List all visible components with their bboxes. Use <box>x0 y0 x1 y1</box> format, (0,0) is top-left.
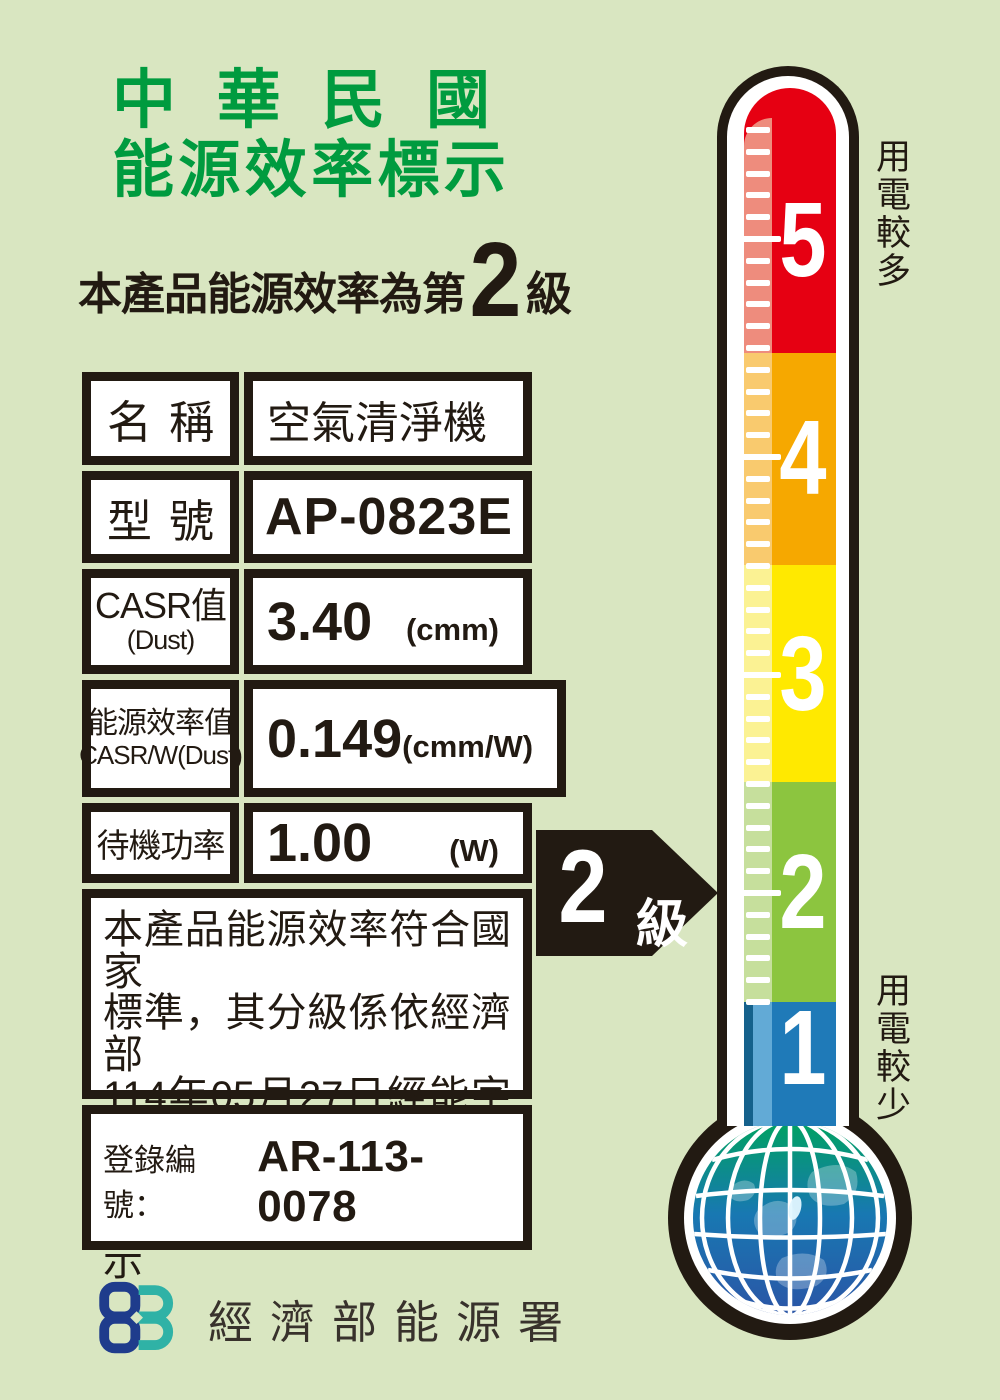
efficiency-label-cell: 能源效率值 CASR/W(Dust) <box>82 680 239 797</box>
scale-tick <box>746 781 770 787</box>
scale-tick <box>746 868 770 874</box>
arrow-grade-suffix: 級 <box>636 882 688 957</box>
scale-tick <box>746 737 770 743</box>
scale-tick <box>746 258 770 264</box>
standby-value-cell: 1.00 (W) <box>244 803 532 883</box>
standby-label-cell: 待機功率 <box>82 803 239 883</box>
scale-tick <box>736 236 781 242</box>
statement-cell: 本產品能源效率符合國家 標準，其分級係依經濟部 114年05月27日經能字第 1… <box>82 889 532 1099</box>
level-number-1: 1 <box>776 997 830 1099</box>
name-label-cell: 名稱 <box>82 372 239 465</box>
scale-tick <box>746 716 770 722</box>
scale-tick <box>746 694 770 700</box>
grade-statement-prefix: 本產品能源效率為第 <box>78 273 465 326</box>
scale-tick <box>746 563 770 569</box>
scale-tick <box>736 454 781 460</box>
model-value-cell: AP-0823E <box>244 471 532 563</box>
grade-statement-number: 2 <box>470 235 522 326</box>
table-row-efficiency: 能源效率值 CASR/W(Dust) 0.149 (cmm/W) <box>82 680 532 797</box>
scale-tick <box>746 607 770 613</box>
table-row-standby: 待機功率 1.00 (W) <box>82 803 532 883</box>
thermometer: 54321 <box>717 66 859 1126</box>
casr-unit: (cmm) <box>406 612 499 648</box>
scale-tick <box>746 323 770 329</box>
scale-tick <box>746 650 770 656</box>
table-row-name: 名稱 空氣清淨機 <box>82 372 532 465</box>
level-number-3: 3 <box>776 623 830 725</box>
efficiency-value-cell: 0.149 (cmm/W) <box>244 680 566 797</box>
scale-tick <box>746 846 770 852</box>
efficiency-label: 能源效率值 <box>88 708 233 740</box>
name-value: 空氣清淨機 <box>253 387 523 451</box>
grade-statement-suffix: 級 <box>526 271 572 326</box>
scale-tick <box>746 519 770 525</box>
scale-tick <box>746 301 770 307</box>
more-power-label: 用電較多 <box>872 138 909 290</box>
casr-value: 3.40 <box>267 591 372 653</box>
scale-tick <box>746 541 770 547</box>
label-title-line2: 能源效率標示 <box>112 136 506 206</box>
statement-line: 本產品能源效率符合國家 <box>103 910 511 993</box>
statement-line: 標準，其分級係依經濟部 <box>103 993 511 1076</box>
label-title-line1: 中華民國 <box>112 64 490 136</box>
level-number-2: 2 <box>776 841 830 943</box>
table-row-registration: 登錄編號： AR-113-0078 <box>82 1105 532 1250</box>
scale-tick <box>746 955 770 961</box>
footer: 經濟部能源署 <box>96 1280 580 1356</box>
scale-tick <box>746 171 770 177</box>
casr-label-cell: CASR值 (Dust) <box>82 569 239 674</box>
spec-table: 名稱 空氣清淨機 型號 AP-0823E CASR值 (Dust) <box>82 372 532 1250</box>
agency-name: 經濟部能源署 <box>208 1286 580 1351</box>
table-row-casr: CASR值 (Dust) 3.40 (cmm) <box>82 569 532 674</box>
casr-label-sub: (Dust) <box>127 626 195 655</box>
efficiency-unit: (cmm/W) <box>402 729 533 765</box>
scale-tick <box>746 410 770 416</box>
standby-value: 1.00 <box>267 812 372 874</box>
scale-tick <box>746 803 770 809</box>
scale-tick <box>746 498 770 504</box>
scale-tick <box>746 825 770 831</box>
less-power-label: 用電較少 <box>872 972 909 1124</box>
model-label-cell: 型號 <box>82 471 239 563</box>
energy-administration-logo <box>96 1280 178 1356</box>
efficiency-value: 0.149 <box>267 708 402 770</box>
scale-tick <box>746 628 770 634</box>
scale-tick <box>746 912 770 918</box>
level-number-4: 4 <box>776 407 830 509</box>
grade-statement: 本產品能源效率為第 2 級 <box>78 214 598 326</box>
level-number-5: 5 <box>776 189 830 291</box>
arrow-grade-number: 2 <box>558 838 607 936</box>
model-label: 型號 <box>91 485 230 550</box>
registration-label: 登錄編號： <box>103 1135 257 1225</box>
name-value-cell: 空氣清淨機 <box>244 372 532 465</box>
grade-arrow: 2 級 <box>536 830 718 956</box>
name-label: 名稱 <box>91 386 230 451</box>
scale-tick <box>746 759 770 765</box>
scale-tick <box>746 977 770 983</box>
model-value: AP-0823E <box>253 487 523 547</box>
table-row-model: 型號 AP-0823E <box>82 471 532 563</box>
scale-tick <box>746 432 770 438</box>
scale-tick <box>746 367 770 373</box>
scale-tick <box>746 149 770 155</box>
scale-tick <box>746 280 770 286</box>
standby-unit: (W) <box>449 833 499 869</box>
scale-tick <box>746 192 770 198</box>
scale-tick <box>736 672 781 678</box>
standby-label: 待機功率 <box>97 819 225 867</box>
casr-value-cell: 3.40 (cmm) <box>244 569 532 674</box>
globe-bulb <box>662 1090 918 1346</box>
scale-tick <box>746 389 770 395</box>
energy-efficiency-label: 中華民國 能源效率標示 本產品能源效率為第 2 級 名稱 空氣清淨機 型號 AP… <box>0 0 1000 1400</box>
scale-tick <box>746 345 770 351</box>
table-row-statement: 本產品能源效率符合國家 標準，其分級係依經濟部 114年05月27日經能字第 1… <box>82 889 532 1099</box>
scale-tick <box>746 934 770 940</box>
scale-tick <box>746 127 770 133</box>
scale-tick <box>746 999 770 1005</box>
casr-label: CASR值 <box>95 587 226 626</box>
scale-tick <box>736 890 781 896</box>
scale-tick <box>746 214 770 220</box>
scale-tick <box>746 476 770 482</box>
efficiency-label-sub: CASR/W(Dust) <box>79 741 242 769</box>
scale-tick <box>746 585 770 591</box>
registration-number: AR-113-0078 <box>257 1132 523 1232</box>
registration-cell: 登錄編號： AR-113-0078 <box>82 1105 532 1250</box>
thermometer-levels: 54321 <box>717 66 859 1126</box>
